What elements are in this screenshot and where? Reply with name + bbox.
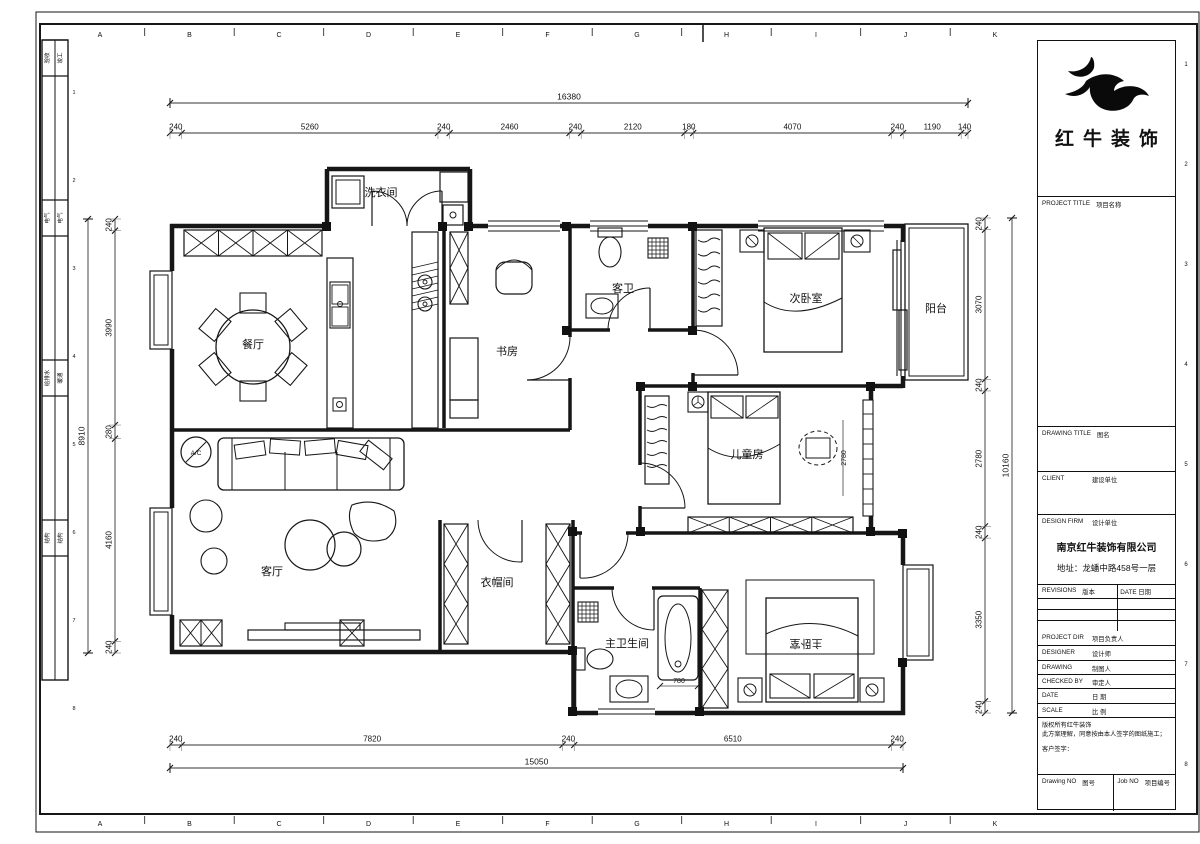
revisions-label-zh: 版本 — [1082, 587, 1095, 596]
grid-letter-bottom: C — [276, 821, 281, 828]
dim-segment: 5260 — [301, 123, 319, 132]
grid-number-left: 2 — [72, 178, 75, 184]
dim-segment: 140 — [958, 123, 972, 132]
dim-segment: 3350 — [975, 610, 984, 628]
dim-segment: 4160 — [105, 531, 114, 549]
drawing-sheet: AABBCCDDEEFFGGHHIIJJKK1122334455667788验收… — [0, 0, 1200, 844]
drawing-title-section: DRAWING TITLE图名 — [1038, 426, 1175, 471]
dim-segment: 2460 — [501, 123, 519, 132]
drawing-label-zh: 制图人 — [1092, 664, 1111, 673]
grid-letter-bottom: A — [98, 821, 103, 828]
grid-letter-bottom: D — [366, 821, 371, 828]
grid-letter-bottom: E — [456, 821, 461, 828]
room-label: 主卫生间 — [605, 636, 649, 650]
dim-segment: 240 — [975, 525, 984, 539]
number-cells: Drawing NO图号 Job NO项目编号 — [1038, 774, 1175, 811]
client-section: CLIENT建设单位 — [1038, 471, 1175, 514]
dim-total: 16380 — [557, 92, 581, 102]
room-label: 儿童房 — [731, 447, 764, 461]
signature-rows: PROJECT DIR项目负责人 DESIGNER设计师 DRAWING制图人 … — [1038, 631, 1175, 717]
company-name: 南京红牛装饰有限公司 — [1038, 539, 1175, 554]
room-label: 洗衣间 — [365, 185, 398, 199]
drawing-title-label-zh: 图名 — [1097, 430, 1110, 439]
grid-letter-top: G — [634, 32, 639, 39]
grid-letter-top: A — [98, 32, 103, 39]
grid-number-left: 3 — [72, 266, 75, 272]
drawing-title-label-en: DRAWING TITLE — [1042, 430, 1091, 439]
room-label: 客厅 — [261, 564, 283, 578]
revision-row — [1038, 610, 1175, 621]
dim-total: 8910 — [77, 426, 87, 445]
revisions-label-en: REVISIONS — [1042, 587, 1076, 596]
company-logo-icon — [1055, 55, 1159, 117]
grid-letter-bottom: K — [993, 821, 998, 828]
grid-number-right: 1 — [1184, 62, 1188, 68]
drawing-label-en: DRAWING — [1042, 664, 1086, 673]
revision-row — [1038, 621, 1175, 631]
client-signature-label: 客户签字： — [1042, 746, 1171, 755]
client-label-en: CLIENT — [1042, 475, 1086, 484]
dim-segment: 240 — [437, 123, 451, 132]
grid-letter-top: H — [724, 32, 729, 39]
grid-letter-bottom: G — [634, 821, 639, 828]
grid-letter-bottom: H — [724, 821, 729, 828]
date-head-label-zh: 日期 — [1138, 589, 1151, 596]
date-label-zh: 日 期 — [1092, 692, 1106, 701]
design-firm-label-en: DESIGN FIRM — [1042, 518, 1086, 527]
grid-letter-top: K — [993, 32, 998, 39]
grid-number-left: 4 — [72, 354, 75, 360]
company-address: 地址：龙蟠中路458号一层 — [1038, 562, 1175, 574]
design-firm-label-zh: 设计单位 — [1092, 518, 1117, 527]
room-label: 次卧室 — [790, 291, 823, 305]
grid-number-right: 7 — [1184, 662, 1188, 668]
signoff-cell: 暖通 — [56, 372, 64, 384]
date-label-en: DATE — [1042, 692, 1086, 701]
grid-letter-bottom: F — [545, 821, 549, 828]
grid-number-right: 2 — [1184, 162, 1188, 168]
dim-segment: 280 — [105, 425, 114, 439]
scale-label-zh: 比 例 — [1092, 707, 1106, 716]
copyright-line-1: 版权所有红牛装饰 — [1042, 722, 1171, 731]
room-label: 主卧室 — [790, 637, 823, 651]
grid-number-right: 3 — [1184, 262, 1188, 268]
signoff-cell: 给排水 — [43, 369, 51, 386]
copyright-note: 版权所有红牛装饰 此方案理解，同意按由本人签字的图纸施工； 客户签字： — [1038, 717, 1175, 774]
logo-block: 红牛装饰 — [1038, 41, 1175, 196]
dim-segment: 240 — [891, 123, 905, 132]
dim-segment: 240 — [975, 217, 984, 231]
signoff-cell: 竣工 — [56, 52, 64, 64]
date-head-label-en: DATE — [1120, 589, 1136, 596]
grid-number-left: 5 — [72, 442, 75, 448]
job-no-label-zh: 项目编号 — [1145, 778, 1170, 787]
room-label: 书房 — [496, 345, 518, 358]
dim-segment: 2780 — [975, 449, 984, 467]
dim-segment: 240 — [975, 378, 984, 392]
dim-segment: 3990 — [105, 318, 114, 336]
grid-number-right: 5 — [1184, 462, 1188, 468]
ac-label: A/C — [191, 450, 202, 457]
project-title-label-en: PROJECT TITLE — [1042, 200, 1090, 209]
designer-label-zh: 设计师 — [1092, 649, 1111, 658]
grid-number-right: 4 — [1184, 362, 1188, 368]
grid-letter-top: E — [456, 32, 461, 39]
company-logo-text: 红牛装饰 — [1038, 124, 1175, 151]
dim-total: 10160 — [1001, 453, 1011, 477]
project-title-section: PROJECT TITLE项目名称 — [1038, 196, 1175, 426]
dim-segment: 2120 — [624, 123, 642, 132]
checked-by-label-zh: 审定人 — [1092, 678, 1111, 687]
signoff-cell: 验收 — [43, 52, 51, 64]
drawing-no-label-en: Drawing NO — [1042, 778, 1076, 787]
dim-segment: 240 — [569, 123, 583, 132]
grid-letter-bottom: I — [815, 821, 817, 828]
designer-label-en: DESIGNER — [1042, 649, 1086, 658]
dim-segment: 3070 — [975, 295, 984, 313]
revisions-table: REVISIONS版本 DATE 日期 — [1038, 584, 1175, 631]
dim-segment: 1190 — [924, 123, 942, 132]
grid-number-right: 8 — [1184, 762, 1188, 768]
room-label: 餐厅 — [242, 337, 264, 351]
copyright-line-2: 此方案理解，同意按由本人签字的图纸施工； — [1042, 731, 1171, 740]
grid-letter-bottom: J — [904, 821, 908, 828]
dim-segment: 7820 — [363, 735, 381, 744]
dim-segment: 240 — [169, 735, 183, 744]
inline-dim: 780 — [673, 678, 685, 685]
signoff-cell: 电气 — [56, 212, 64, 224]
grid-number-left: 7 — [72, 618, 75, 624]
revision-row — [1038, 599, 1175, 610]
grid-letter-top: J — [904, 32, 908, 39]
room-label: 客卫 — [612, 281, 634, 295]
project-dir-label-en: PROJECT DIR — [1042, 634, 1086, 643]
dim-segment: 240 — [169, 123, 183, 132]
client-label-zh: 建设单位 — [1092, 475, 1117, 484]
title-block: 红牛装饰 PROJECT TITLE项目名称 DRAWING TITLE图名 C… — [1037, 40, 1176, 810]
inline-dim: 2780 — [841, 450, 848, 466]
scale-label-en: SCALE — [1042, 707, 1086, 716]
grid-letter-top: C — [276, 32, 281, 39]
grid-number-right: 6 — [1184, 562, 1188, 568]
signoff-cell: 结构 — [43, 532, 51, 544]
job-no-label-en: Job NO — [1117, 778, 1138, 787]
dim-segment: 6510 — [724, 735, 742, 744]
grid-letter-bottom: B — [187, 821, 192, 828]
dim-segment: 180 — [682, 123, 696, 132]
grid-letter-top: D — [366, 32, 371, 39]
grid-letter-top: F — [545, 32, 549, 39]
dim-segment: 240 — [562, 735, 576, 744]
room-label: 衣帽间 — [481, 575, 514, 589]
dim-segment: 240 — [105, 218, 114, 232]
dim-segment: 240 — [975, 700, 984, 714]
grid-number-left: 1 — [72, 90, 75, 96]
dim-segment: 4070 — [783, 123, 801, 132]
grid-number-left: 8 — [72, 706, 75, 712]
floor-plan-canvas: AABBCCDDEEFFGGHHIIJJKK1122334455667788验收… — [0, 0, 1200, 844]
drawing-no-label-zh: 图号 — [1082, 778, 1095, 787]
signoff-cell: 结构 — [56, 532, 64, 544]
signoff-cell: 电气 — [43, 212, 51, 224]
design-firm-section: DESIGN FIRM设计单位 南京红牛装饰有限公司 地址：龙蟠中路458号一层 — [1038, 514, 1175, 584]
dim-segment: 240 — [890, 735, 904, 744]
project-dir-label-zh: 项目负责人 — [1092, 634, 1123, 643]
grid-letter-top: I — [815, 32, 817, 39]
project-title-label-zh: 项目名称 — [1096, 200, 1121, 209]
grid-letter-top: B — [187, 32, 192, 39]
grid-number-left: 6 — [72, 530, 75, 536]
dim-segment: 240 — [105, 640, 114, 654]
checked-by-label-en: CHECKED BY — [1042, 678, 1086, 687]
room-label: 阳台 — [925, 301, 947, 315]
dim-total: 15050 — [525, 757, 549, 767]
